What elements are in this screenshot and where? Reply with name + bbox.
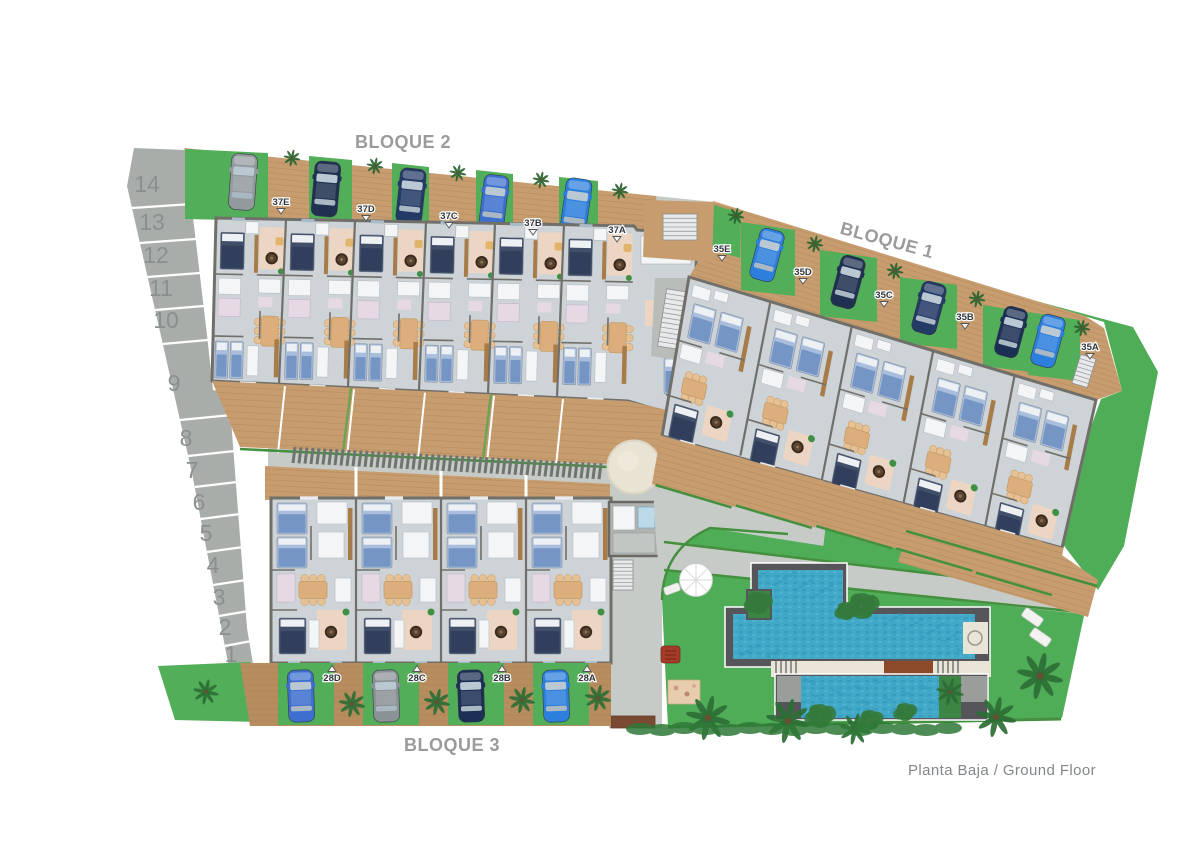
svg-text:28C: 28C bbox=[408, 673, 426, 684]
svg-text:Planta Baja / Ground Floor: Planta Baja / Ground Floor bbox=[908, 762, 1096, 779]
svg-text:37B: 37B bbox=[524, 218, 542, 229]
svg-text:7: 7 bbox=[186, 457, 199, 483]
svg-text:5: 5 bbox=[200, 520, 213, 546]
svg-text:8: 8 bbox=[180, 425, 193, 451]
svg-text:37E: 37E bbox=[273, 197, 290, 208]
svg-text:14: 14 bbox=[134, 171, 160, 197]
svg-text:12: 12 bbox=[143, 242, 169, 268]
svg-text:28D: 28D bbox=[323, 673, 341, 684]
svg-text:10: 10 bbox=[153, 307, 179, 333]
svg-text:4: 4 bbox=[207, 552, 220, 578]
svg-text:35E: 35E bbox=[714, 244, 731, 255]
svg-text:BLOQUE 3: BLOQUE 3 bbox=[404, 735, 500, 755]
svg-text:37C: 37C bbox=[440, 211, 458, 222]
svg-text:28A: 28A bbox=[578, 673, 596, 684]
svg-text:37D: 37D bbox=[357, 204, 375, 215]
svg-text:11: 11 bbox=[149, 275, 173, 301]
svg-text:37A: 37A bbox=[608, 225, 626, 236]
svg-text:35A: 35A bbox=[1081, 342, 1099, 353]
svg-text:BLOQUE 2: BLOQUE 2 bbox=[355, 132, 451, 152]
svg-text:6: 6 bbox=[193, 489, 206, 515]
svg-text:9: 9 bbox=[168, 370, 181, 396]
svg-text:35C: 35C bbox=[875, 290, 893, 301]
svg-text:35D: 35D bbox=[794, 267, 812, 278]
svg-text:3: 3 bbox=[213, 584, 226, 610]
svg-text:2: 2 bbox=[219, 614, 232, 640]
svg-text:28B: 28B bbox=[493, 673, 511, 684]
svg-text:13: 13 bbox=[139, 209, 165, 235]
svg-text:35B: 35B bbox=[956, 312, 974, 323]
